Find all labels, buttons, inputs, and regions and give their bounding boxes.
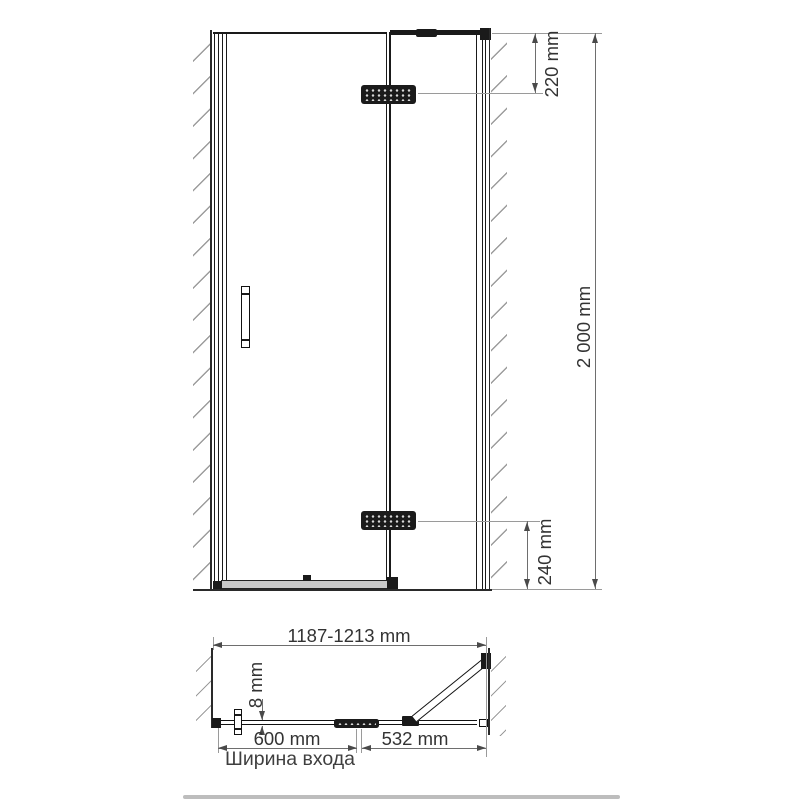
extension-line-floor xyxy=(521,589,602,590)
handle-top-cap-line xyxy=(242,293,250,295)
fixed-panel-right-edge xyxy=(476,34,477,589)
right-wall-profile-line xyxy=(485,30,486,589)
dimension-label-240: 240 mm xyxy=(535,517,555,587)
right-wall-profile-line xyxy=(482,30,483,589)
dimension-label-glass-thickness: 8 mm xyxy=(246,660,266,710)
door-handle xyxy=(241,286,251,348)
plan-handle-band xyxy=(235,714,241,716)
support-bar-sleeve xyxy=(416,29,437,37)
arrow-left-icon xyxy=(213,642,222,648)
arrow-right-icon xyxy=(477,642,486,648)
plan-diagonal-support-bar xyxy=(411,658,487,722)
floor-line xyxy=(193,589,492,591)
dimension-label-fixed-panel: 532 mm xyxy=(345,729,485,747)
plan-left-wall-hatch xyxy=(196,648,211,728)
arrow-up-icon xyxy=(592,34,598,43)
floor-line-extension xyxy=(492,589,521,590)
bottom-separator-bar xyxy=(183,795,620,799)
door-bottom-stopper xyxy=(303,575,311,581)
hinge-screw-holes xyxy=(364,88,413,101)
plan-right-wall-hatch xyxy=(491,648,506,736)
hinge-screw-holes xyxy=(337,722,376,726)
extension-line-top-hinge xyxy=(418,93,543,94)
arrow-down-icon xyxy=(524,579,530,588)
door-top-frame-line xyxy=(213,32,387,34)
arrow-down-icon xyxy=(532,83,538,92)
plan-left-wall-line xyxy=(211,648,213,728)
bottom-hinge xyxy=(361,511,416,530)
door-divider-line xyxy=(386,32,387,589)
left-wall-profile-line xyxy=(214,32,215,588)
plan-left-wall-profile xyxy=(212,718,221,728)
top-hinge xyxy=(361,85,416,104)
extension-line-bottom-hinge xyxy=(418,521,540,522)
plan-hinge-assembly xyxy=(334,719,379,729)
front-right-wall-hatch xyxy=(491,28,507,590)
sill-right-bracket xyxy=(387,577,398,589)
front-left-wall-line xyxy=(210,30,212,591)
dimension-label-220: 220 mm xyxy=(542,29,562,99)
left-wall-profile-line xyxy=(222,32,223,588)
arrow-up-icon xyxy=(524,522,530,531)
extension-line-width-right xyxy=(486,637,487,757)
dimension-line-2000 xyxy=(595,33,596,589)
arrow-down-icon xyxy=(592,579,598,588)
handle-bottom-cap-line xyxy=(242,339,250,341)
bottom-sill xyxy=(221,580,398,589)
door-divider-line xyxy=(389,32,391,589)
dimension-label-2000: 2 000 mm xyxy=(574,282,594,372)
left-wall-profile-line xyxy=(226,32,228,588)
arrow-down-icon xyxy=(259,711,265,720)
hinge-screw-holes xyxy=(364,514,413,527)
front-left-wall-hatch xyxy=(193,30,210,591)
left-wall-profile-line xyxy=(218,32,219,588)
arrow-up-icon xyxy=(532,34,538,43)
dimension-label-total-width: 1187-1213 mm xyxy=(249,626,449,646)
top-support-bar xyxy=(390,30,490,35)
dimension-label-door-width: 600 mm xyxy=(217,729,357,747)
entrance-width-label: Ширина входа xyxy=(190,749,390,769)
technical-drawing-canvas: 220 mm 2 000 mm 240 mm 1187-1213 mm 8 mm xyxy=(0,0,800,800)
